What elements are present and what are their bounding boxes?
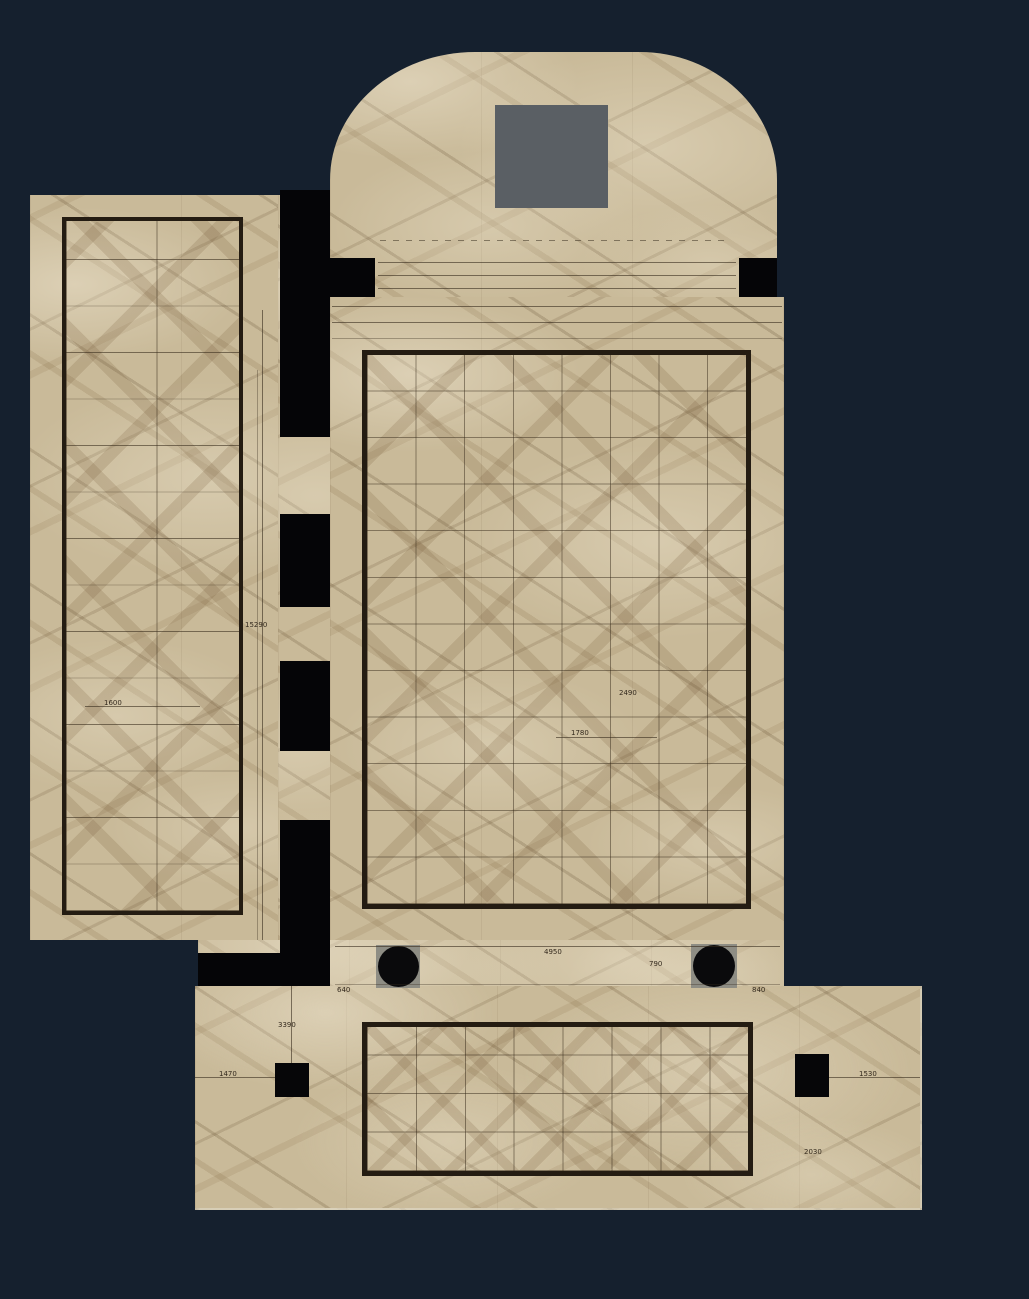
wall-segment-arch-right xyxy=(739,258,777,297)
dimension-line-vertical xyxy=(257,370,258,940)
dimension-label: 1530 xyxy=(859,1070,877,1078)
wall-segment-lower-left xyxy=(198,953,330,986)
wall-segment-corridor-3 xyxy=(280,661,330,751)
dimension-label: 2490 xyxy=(619,689,637,697)
step-line xyxy=(378,288,736,289)
mihrab-niche-square xyxy=(495,105,608,208)
dimension-label: 790 xyxy=(649,960,662,968)
lower-corridor-line xyxy=(335,946,780,947)
square-column-left xyxy=(275,1063,309,1097)
dimension-label: 1600 xyxy=(104,699,122,707)
step-line xyxy=(332,338,782,339)
dimension-label: 1780 xyxy=(571,729,589,737)
round-column-left xyxy=(378,946,419,987)
left-hall-tile-field xyxy=(62,217,243,915)
wall-segment-corridor-2 xyxy=(280,514,330,607)
step-line xyxy=(380,240,730,241)
step-line xyxy=(378,262,736,263)
main-hall-tile-field xyxy=(362,350,751,909)
dimension-label: 3390 xyxy=(278,1021,296,1029)
lower-hall-tile-field xyxy=(362,1022,753,1176)
lower-corridor-line xyxy=(335,984,780,985)
dimension-label: 4950 xyxy=(544,948,562,956)
dimension-label: 840 xyxy=(752,986,765,994)
dimension-label: 1470 xyxy=(219,1070,237,1078)
step-line xyxy=(332,306,782,307)
step-line xyxy=(378,275,736,276)
dimension-label: 15290 xyxy=(245,621,267,629)
wall-segment-arch-left xyxy=(283,258,375,297)
dimension-label: 640 xyxy=(337,986,350,994)
wall-segment-corridor-top xyxy=(280,190,330,437)
dimension-line xyxy=(556,737,657,738)
step-line xyxy=(332,322,782,323)
round-column-right xyxy=(693,945,735,987)
dimension-line xyxy=(85,706,200,707)
square-column-right xyxy=(795,1054,829,1097)
floor-plan-canvas: { "scene": { "description": "Rendered ar… xyxy=(0,0,1029,1299)
dimension-label: 2030 xyxy=(804,1148,822,1156)
